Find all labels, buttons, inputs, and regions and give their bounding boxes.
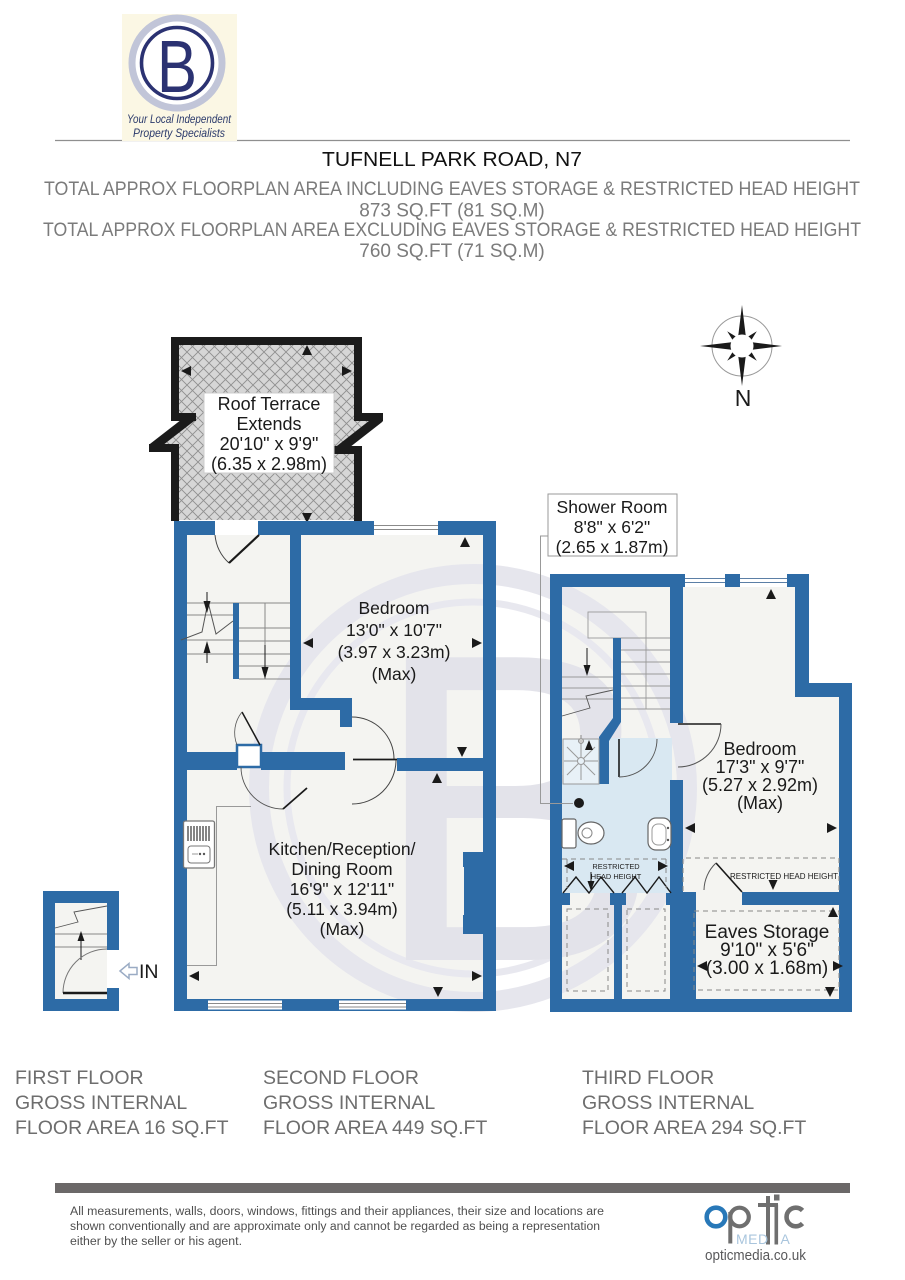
- svg-text:TOTAL APPROX FLOORPLAN AREA IN: TOTAL APPROX FLOORPLAN AREA INCLUDING EA…: [44, 179, 860, 200]
- svg-text:RESTRICTED: RESTRICTED: [592, 862, 639, 871]
- svg-text:Bedroom: Bedroom: [358, 598, 429, 618]
- svg-text:TOTAL APPROX FLOORPLAN AREA EX: TOTAL APPROX FLOORPLAN AREA EXCLUDING EA…: [43, 220, 861, 241]
- svg-text:RESTRICTED HEAD HEIGHT: RESTRICTED HEAD HEIGHT: [730, 872, 838, 881]
- svg-text:TUFNELL PARK ROAD, N7: TUFNELL PARK ROAD, N7: [322, 149, 582, 171]
- svg-text:Property Specialists: Property Specialists: [133, 126, 225, 140]
- svg-text:(3.97 x 3.23m): (3.97 x 3.23m): [338, 642, 451, 662]
- svg-text:Extends: Extends: [236, 414, 301, 434]
- svg-text:THIRD FLOOR: THIRD FLOOR: [582, 1067, 714, 1089]
- svg-text:(2.65 x 1.87m): (2.65 x 1.87m): [556, 537, 669, 557]
- svg-text:(5.27 x 2.92m): (5.27 x 2.92m): [702, 775, 818, 795]
- svg-text:IN: IN: [139, 961, 159, 983]
- svg-text:20'10" x 9'9": 20'10" x 9'9": [220, 434, 319, 454]
- svg-text:760 SQ.FT (71 SQ.M): 760 SQ.FT (71 SQ.M): [359, 241, 544, 262]
- svg-text:Shower Room: Shower Room: [557, 497, 668, 517]
- svg-text:SECOND FLOOR: SECOND FLOOR: [263, 1067, 419, 1089]
- svg-text:B: B: [157, 25, 197, 108]
- svg-text:16'9" x 12'11": 16'9" x 12'11": [290, 879, 394, 899]
- svg-text:FIRST FLOOR: FIRST FLOOR: [15, 1067, 144, 1089]
- svg-text:Bedroom: Bedroom: [723, 739, 796, 759]
- svg-text:(Max): (Max): [372, 664, 417, 684]
- svg-text:8'8" x 6'2": 8'8" x 6'2": [574, 517, 651, 537]
- svg-text:(6.35 x 2.98m): (6.35 x 2.98m): [211, 454, 327, 474]
- svg-text:N: N: [735, 385, 752, 411]
- svg-text:(5.11 x 3.94m): (5.11 x 3.94m): [286, 899, 398, 919]
- svg-text:GROSS INTERNAL: GROSS INTERNAL: [582, 1092, 754, 1114]
- svg-text:FLOOR AREA 449 SQ.FT: FLOOR AREA 449 SQ.FT: [263, 1117, 487, 1139]
- svg-text:GROSS INTERNAL: GROSS INTERNAL: [15, 1092, 187, 1114]
- svg-text:Dining Room: Dining Room: [291, 859, 392, 879]
- svg-text:17'3" x 9'7": 17'3" x 9'7": [716, 757, 805, 777]
- svg-text:shown conventionally and are a: shown conventionally and are approximate…: [70, 1221, 600, 1233]
- svg-text:(Max): (Max): [737, 793, 783, 813]
- svg-text:873 SQ.FT (81 SQ.M): 873 SQ.FT (81 SQ.M): [359, 201, 544, 222]
- svg-text:either by the seller or his ag: either by the seller or his agent.: [70, 1236, 242, 1248]
- svg-text:A: A: [781, 1231, 791, 1247]
- svg-text:Your Local Independent: Your Local Independent: [127, 112, 232, 126]
- svg-text:Kitchen/Reception/: Kitchen/Reception/: [269, 839, 416, 859]
- svg-text:Roof Terrace: Roof Terrace: [218, 394, 321, 414]
- svg-text:13'0" x 10'7": 13'0" x 10'7": [346, 620, 442, 640]
- svg-text:opticmedia.co.uk: opticmedia.co.uk: [705, 1247, 806, 1264]
- svg-text:(Max): (Max): [320, 919, 365, 939]
- svg-text:GROSS INTERNAL: GROSS INTERNAL: [263, 1092, 435, 1114]
- svg-text:FLOOR AREA 294 SQ.FT: FLOOR AREA 294 SQ.FT: [582, 1117, 806, 1139]
- svg-text:MED: MED: [736, 1231, 769, 1247]
- svg-text:All measurements, walls, doors: All measurements, walls, doors, windows,…: [70, 1206, 604, 1218]
- svg-text:HEAD HEIGHT: HEAD HEIGHT: [591, 872, 642, 881]
- svg-text:FLOOR AREA 16 SQ.FT: FLOOR AREA 16 SQ.FT: [15, 1117, 229, 1139]
- svg-text:(3.00 x 1.68m): (3.00 x 1.68m): [706, 958, 829, 979]
